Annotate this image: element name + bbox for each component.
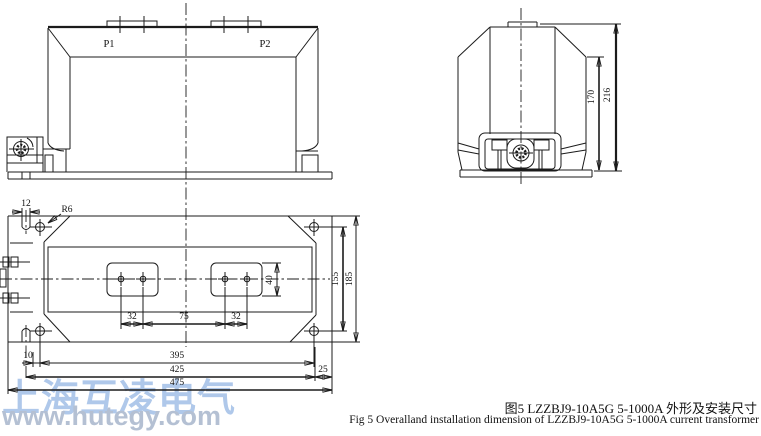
front-body-outline	[43, 27, 318, 172]
dim-185-label: 185	[345, 272, 355, 287]
dim-75-label: 75	[179, 312, 189, 322]
dim-395-label: 395	[170, 351, 185, 361]
front-base-plate	[8, 172, 332, 179]
plan-dimensions: 12 R6 40 32 75 32 155	[8, 199, 360, 390]
plan-view: 12 R6 40 32 75 32 155	[0, 199, 360, 394]
dim-25-label: 25	[318, 365, 328, 375]
side-dimensions: 170 216	[540, 24, 622, 171]
dim-40-label: 40	[265, 275, 275, 285]
plan-edge-slots	[22, 208, 30, 342]
front-ground-terminal	[7, 137, 43, 172]
caption-english: Fig 5 Overalland installation dimension …	[349, 414, 759, 426]
label-p1: P1	[103, 39, 114, 50]
dim-425-label: 425	[170, 365, 185, 375]
engineering-drawing: 上海互凌电气 www.hutegy.com P1 P2	[0, 0, 761, 436]
front-left-step	[45, 155, 53, 172]
front-view: P1 P2	[7, 3, 332, 347]
dim-12-label: 12	[21, 199, 31, 209]
dim-32a-label: 32	[127, 312, 137, 322]
dim-475-label: 475	[170, 378, 185, 388]
dim-155-label: 155	[331, 272, 341, 287]
front-right-step	[302, 155, 318, 172]
plan-secondary-terminals	[0, 243, 33, 312]
dim-r6-label: R6	[61, 205, 72, 215]
side-body-outline	[458, 22, 586, 170]
drawing-canvas: P1 P2	[0, 0, 761, 436]
dim-216-label: 216	[603, 88, 613, 103]
label-p2: P2	[259, 39, 270, 50]
side-view: 170 216	[458, 8, 622, 186]
dim-10-label: 10	[23, 351, 33, 361]
side-terminal-box	[479, 133, 561, 171]
plan-terminal-pads	[107, 263, 262, 296]
front-primary-terminals	[107, 16, 261, 33]
dim-170-label: 170	[587, 90, 597, 105]
dim-32b-label: 32	[231, 312, 241, 322]
